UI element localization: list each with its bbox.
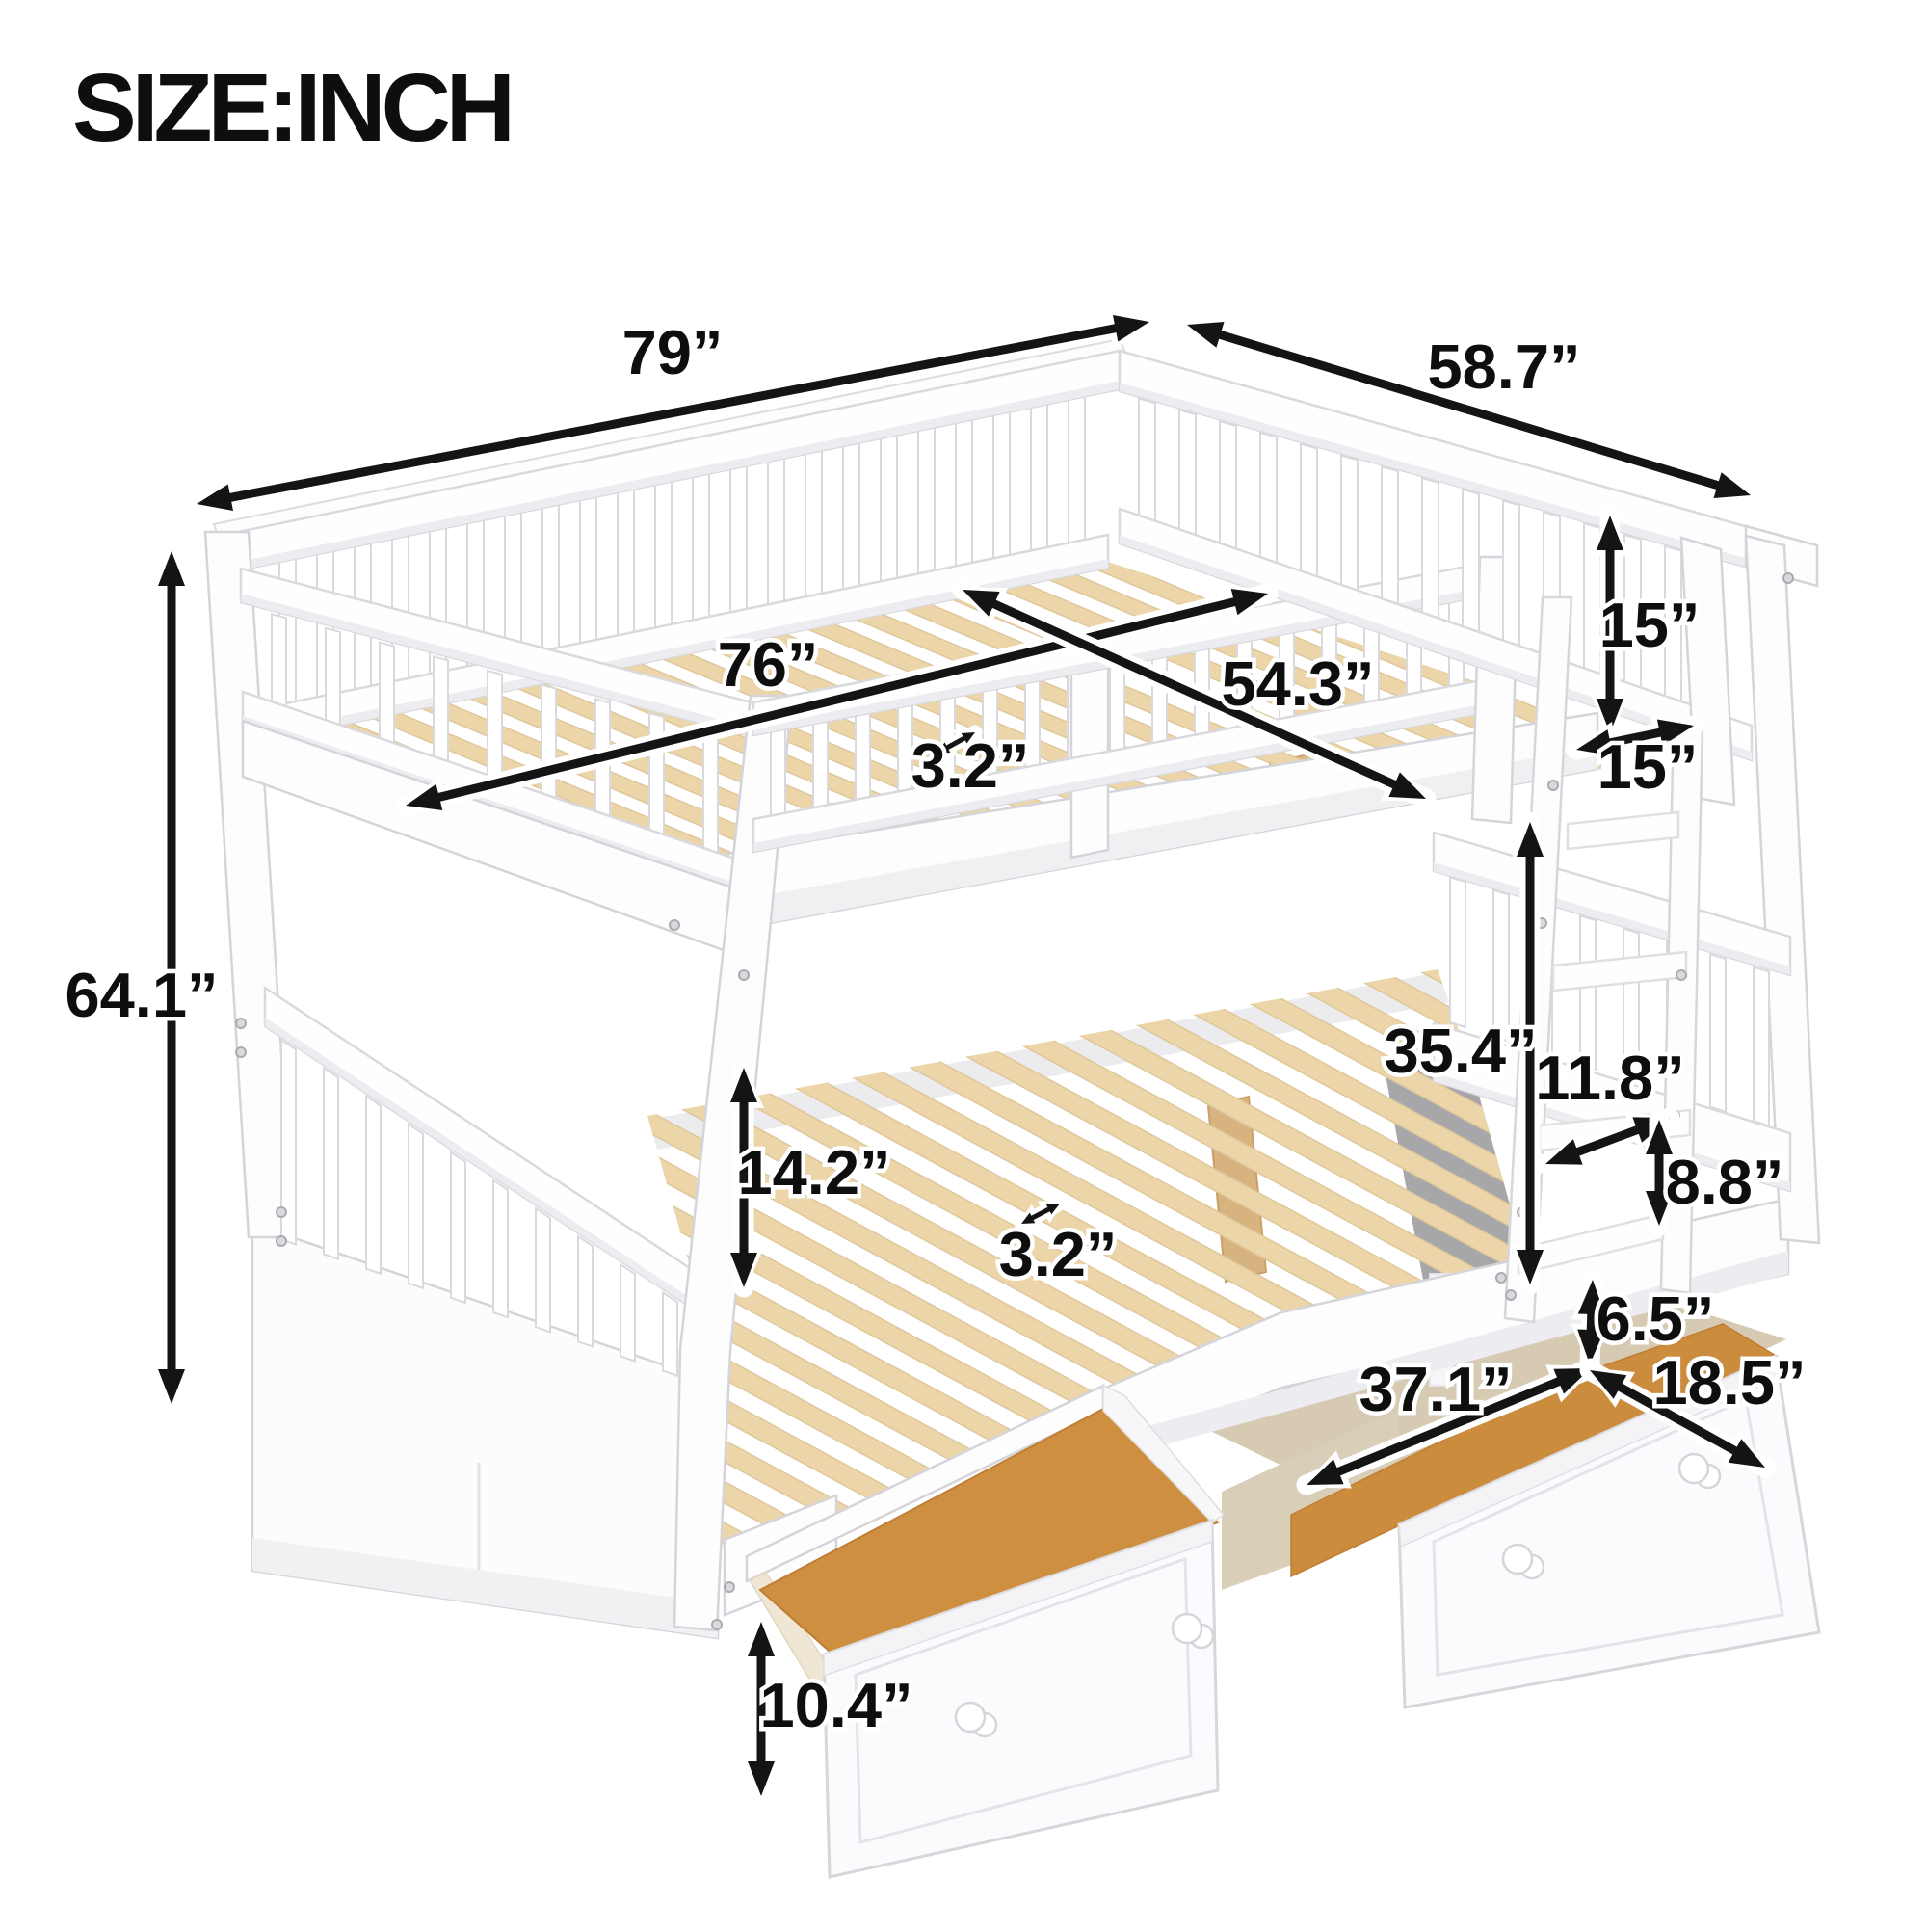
svg-text:37.1”: 37.1” bbox=[1359, 1354, 1512, 1424]
svg-text:79”: 79” bbox=[622, 317, 724, 387]
svg-text:35.4”: 35.4” bbox=[1384, 1016, 1537, 1086]
svg-text:10.4”: 10.4” bbox=[759, 1670, 912, 1740]
svg-text:58.7”: 58.7” bbox=[1427, 331, 1580, 402]
svg-text:15”: 15” bbox=[1599, 590, 1701, 660]
svg-text:76”: 76” bbox=[718, 629, 819, 700]
svg-text:3.2”: 3.2” bbox=[999, 1219, 1118, 1289]
svg-text:14.2”: 14.2” bbox=[737, 1137, 890, 1207]
svg-text:8.8”: 8.8” bbox=[1666, 1147, 1784, 1217]
svg-text:15”: 15” bbox=[1597, 731, 1699, 802]
svg-text:18.5”: 18.5” bbox=[1652, 1347, 1806, 1417]
svg-text:54.3”: 54.3” bbox=[1221, 648, 1374, 719]
svg-text:SIZE:INCH: SIZE:INCH bbox=[72, 54, 511, 162]
svg-text:11.8”: 11.8” bbox=[1535, 1043, 1684, 1113]
svg-text:6.5”: 6.5” bbox=[1597, 1284, 1715, 1354]
svg-text:3.2”: 3.2” bbox=[911, 730, 1030, 801]
svg-text:64.1”: 64.1” bbox=[65, 960, 218, 1030]
